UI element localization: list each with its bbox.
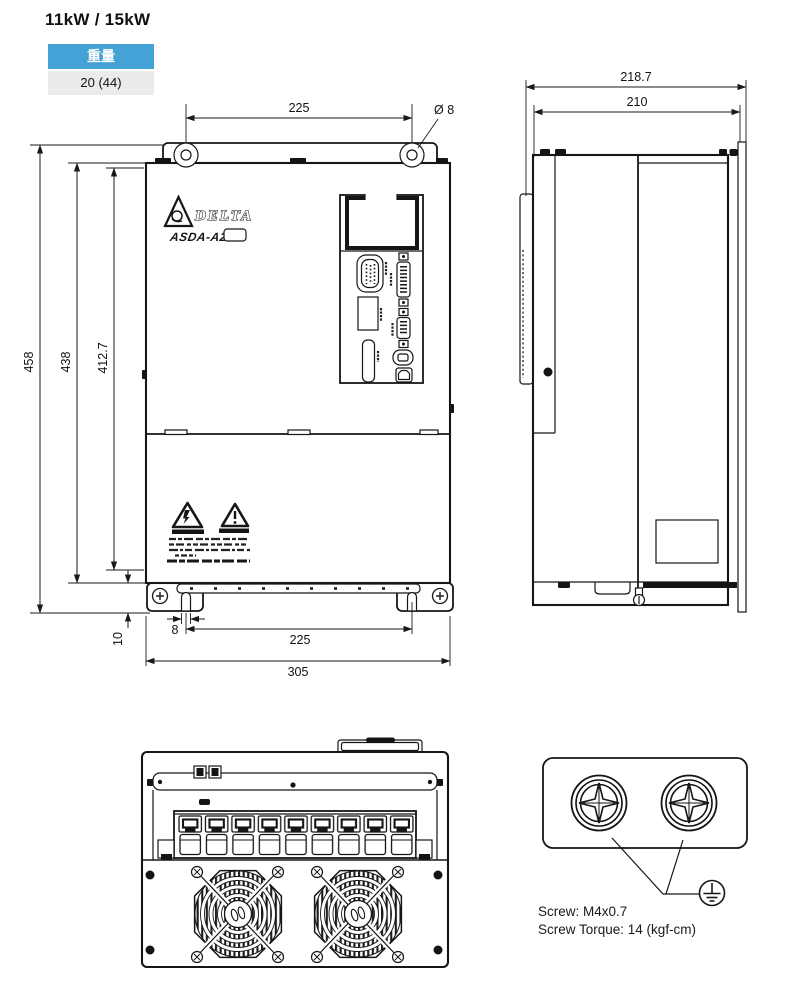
battery-slot [363,340,375,382]
svg-text:458: 458 [22,352,36,373]
keyhole-slot-left [182,593,191,612]
side-screw [544,368,553,377]
usb-connector [396,368,412,382]
mounting-flange [738,142,746,612]
terminal-block [174,811,416,858]
mini-din-connector [393,350,413,365]
svg-text:225: 225 [290,633,311,647]
ground-screw-left [572,776,627,831]
cn2-connector [397,318,410,339]
ground-screw-detail: Screw: M4x0.7 Screw Torque: 14 (kgf-cm) [538,758,747,937]
svg-text:Ø 8: Ø 8 [434,103,454,117]
front-view: DELTA ASDA-A2 [22,101,454,679]
svg-text:225: 225 [289,101,310,115]
dimension-drawing-page: 11kW / 15kW 重量 20 (44) [0,0,800,998]
ground-screw-right [662,776,717,831]
front-cover-tab [520,194,533,384]
db9-connector [357,255,383,292]
svg-text:8: 8 [172,623,179,637]
model-logo-badge [224,229,246,241]
screw-spec-note: Screw: M4x0.7 [538,904,627,919]
svg-text:10: 10 [111,632,125,646]
svg-text:305: 305 [288,665,309,679]
top-handle [338,738,422,754]
dim-mounting-height: 412.7 [96,168,144,570]
display-window [347,198,417,248]
cooling-fan-right [312,867,404,963]
svg-text:438: 438 [59,352,73,373]
nameplate-label [656,520,718,563]
front-panel [340,194,423,384]
technical-drawing: DELTA ASDA-A2 [0,0,800,998]
dim-body-depth: 210 [534,95,740,157]
mounting-hole-top-right [400,143,424,167]
dim-bottom-hole-spacing: 225 [186,602,412,647]
screw-torque-note: Screw Torque: 14 (kgf-cm) [538,922,696,937]
model-wordmark: ASDA-A2 [168,230,228,244]
svg-text:412.7: 412.7 [96,342,110,373]
card-slot-connector [358,297,378,330]
mounting-hole-top-left [174,143,198,167]
cooling-fan-left [192,867,284,963]
bottom-view [142,738,448,968]
model-logo: ASDA-A2 [168,230,228,244]
side-view: 218.7 210 [520,70,746,612]
svg-text:210: 210 [627,95,648,109]
dim-hole-diameter: Ø 8 [418,103,454,148]
dim-top-hole-spacing: 225 [186,101,412,143]
brand-wordmark: DELTA [194,208,253,224]
bottom-screw-side [634,588,645,606]
dim-bottom-offset: 10 [111,570,145,646]
bracket-screw-left [153,589,168,604]
svg-text:218.7: 218.7 [620,70,651,84]
bracket-screw-right [433,589,448,604]
dim-overall-width: 305 [146,616,450,679]
ground-symbol-icon [700,881,725,906]
dim-overall-height: 458 [22,145,164,613]
